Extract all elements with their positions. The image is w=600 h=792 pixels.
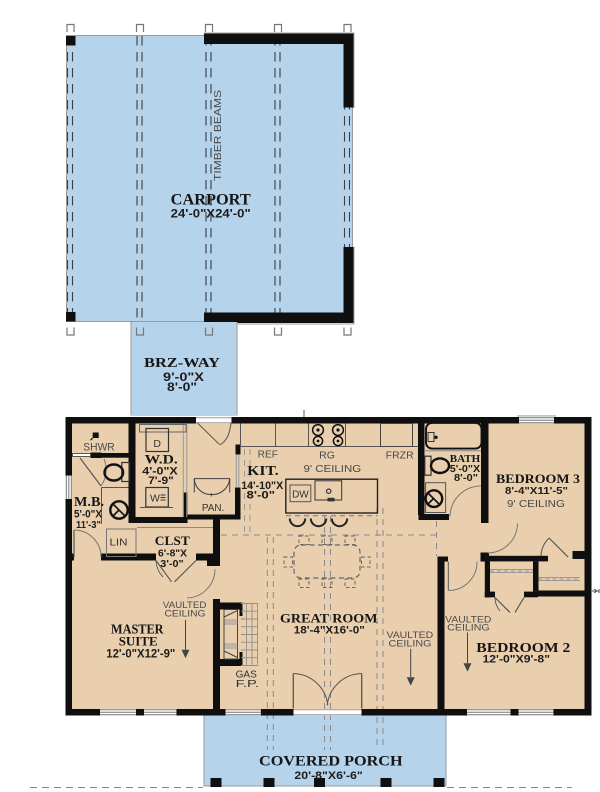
svg-text:W: W [150, 493, 160, 505]
svg-text:12'-0"X12'-9": 12'-0"X12'-9" [106, 648, 175, 660]
svg-text:F.P.: F.P. [236, 679, 259, 690]
svg-text:SUITE: SUITE [119, 633, 158, 648]
svg-text:D: D [153, 438, 161, 450]
svg-text:CEILING: CEILING [447, 623, 490, 633]
svg-text:BEDROOM 3: BEDROOM 3 [496, 471, 581, 486]
svg-text:RG: RG [319, 451, 335, 462]
svg-text:CEILING: CEILING [165, 608, 206, 618]
svg-text:FRZR: FRZR [386, 451, 414, 462]
svg-text:COVERED PORCH: COVERED PORCH [259, 754, 403, 770]
svg-text:TIMBER BEAMS: TIMBER BEAMS [212, 90, 224, 181]
svg-text:CLST: CLST [155, 534, 191, 548]
svg-text:8'-0": 8'-0" [247, 490, 276, 502]
svg-text:7'-9": 7'-9" [148, 475, 174, 487]
svg-text:8'-4"X11'-5": 8'-4"X11'-5" [505, 485, 568, 497]
svg-text:KIT.: KIT. [247, 463, 279, 478]
svg-text:GREAT ROOM: GREAT ROOM [280, 612, 378, 626]
svg-text:CEILING: CEILING [389, 638, 432, 648]
svg-text:8'-0": 8'-0" [167, 382, 197, 394]
svg-text:DW: DW [292, 490, 309, 501]
svg-text:12'-0"X9'-8": 12'-0"X9'-8" [483, 653, 551, 665]
svg-text:3'-0": 3'-0" [160, 558, 183, 570]
svg-text:11'-3": 11'-3" [76, 519, 101, 531]
svg-text:9' CEILING: 9' CEILING [507, 499, 565, 510]
svg-text:REF: REF [258, 450, 278, 461]
svg-text:18'-4"X16'-0": 18'-4"X16'-0" [294, 625, 365, 637]
svg-text:M.B.: M.B. [74, 494, 104, 509]
svg-text:8'-0": 8'-0" [454, 473, 478, 484]
svg-text:PAN.: PAN. [202, 502, 225, 514]
svg-text:BRZ-WAY: BRZ-WAY [144, 356, 220, 371]
svg-text:9' CEILING: 9' CEILING [304, 464, 362, 475]
svg-text:20'-8"X6'-6": 20'-8"X6'-6" [294, 770, 362, 782]
svg-text:LIN: LIN [110, 538, 128, 549]
svg-text:SHWR: SHWR [83, 442, 114, 454]
svg-text:24'-0"X24'-0": 24'-0"X24'-0" [171, 208, 251, 220]
svg-text:CARPORT: CARPORT [171, 191, 251, 208]
svg-text:W.D.: W.D. [145, 451, 178, 466]
